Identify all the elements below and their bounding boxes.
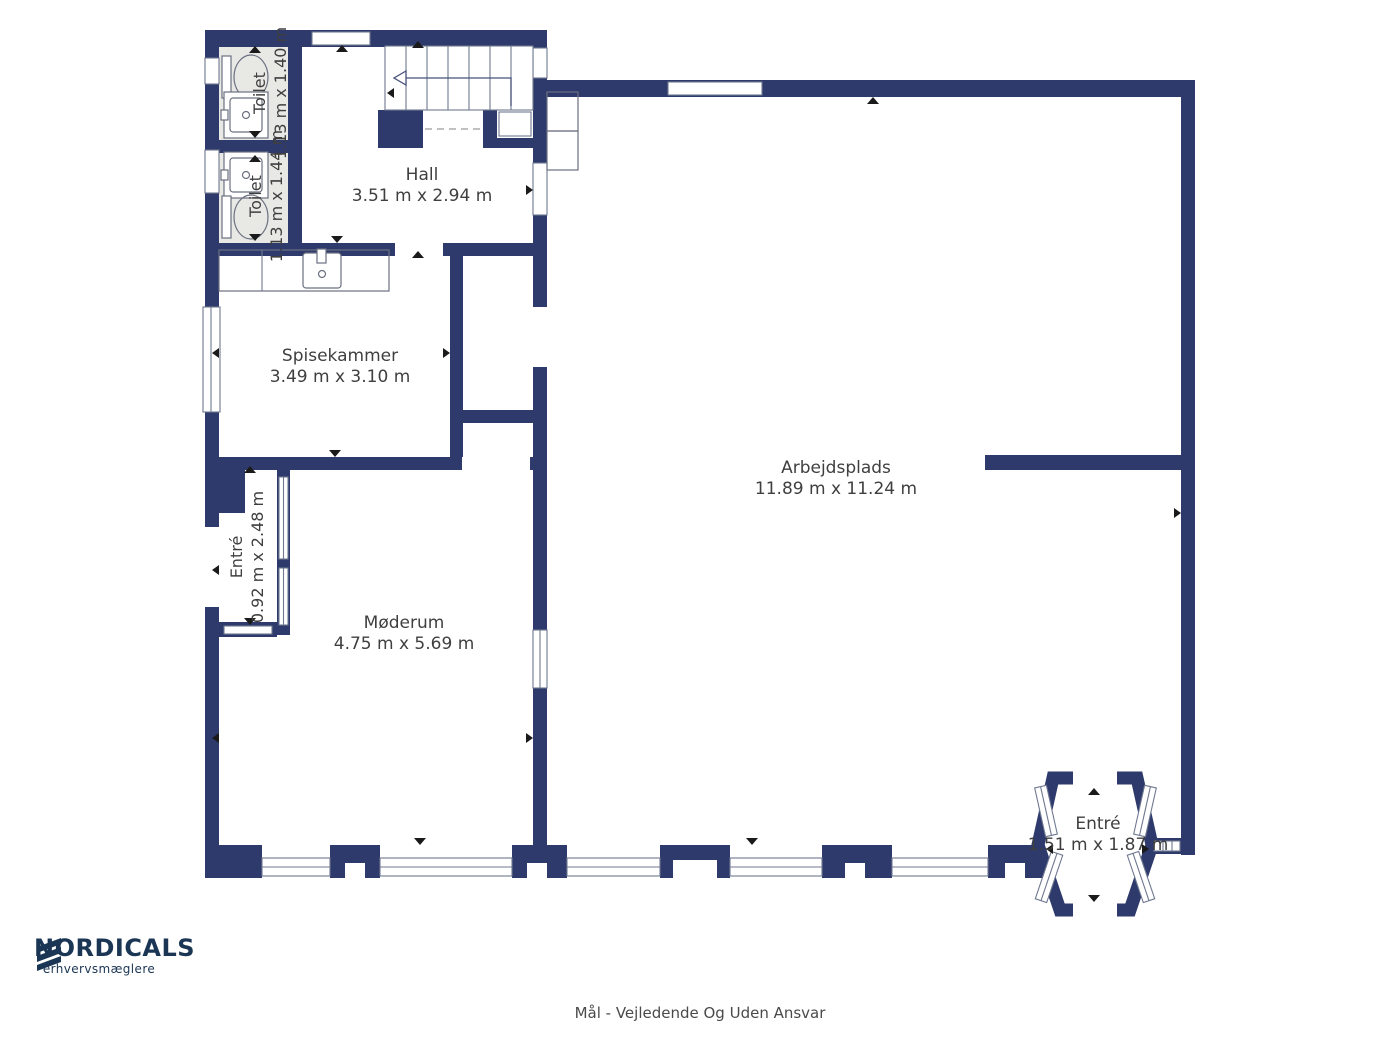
- room-label-toilet-top: Toilet: [250, 72, 269, 115]
- wall-segment: [450, 410, 547, 423]
- room-label-moederum: Møderum: [364, 613, 445, 633]
- room-label-spisekammer: Spisekammer: [282, 346, 398, 366]
- walls: [205, 30, 1195, 855]
- pier: [205, 845, 262, 878]
- window: [668, 82, 762, 95]
- pier-opening: [673, 860, 717, 878]
- room-dims-arbejdsplads: 11.89 m x 11.24 m: [755, 479, 917, 499]
- room-label-toilet-bottom: Toilet: [246, 175, 265, 218]
- measure-arrow: [867, 97, 879, 104]
- sink-tap-icon: [221, 170, 228, 180]
- room-dims-spisekammer: 3.49 m x 3.10 m: [270, 367, 411, 387]
- room-label-hall: Hall: [406, 165, 439, 185]
- room-dims-entre-left: 0.92 m x 2.48 m: [248, 491, 267, 623]
- measure-arrow: [1174, 508, 1181, 518]
- wall-stub: [985, 455, 1181, 470]
- door-opening: [462, 457, 530, 470]
- room-dims-hall: 3.51 m x 2.94 m: [352, 186, 493, 206]
- wall-segment: [547, 80, 1195, 97]
- understair-wall: [483, 110, 497, 148]
- understair-wall: [497, 138, 533, 148]
- pier-opening: [845, 863, 865, 878]
- wc-tank-icon: [222, 196, 231, 238]
- measure-arrow: [526, 185, 533, 195]
- wall-segment: [205, 30, 547, 47]
- window: [224, 626, 272, 634]
- floorplan-drawing: Hall 3.51 m x 2.94 m Spisekammer 3.49 m …: [0, 0, 1400, 1050]
- wall-segment: [219, 457, 245, 513]
- room-label-entre-left: Entré: [227, 536, 246, 579]
- measure-arrow: [526, 733, 533, 743]
- measure-arrow: [746, 838, 758, 845]
- room-dims-entre-right: 1.51 m x 1.87 m: [1028, 835, 1169, 855]
- nordicals-logo-mark: [34, 936, 64, 972]
- room-label-arbejdsplads: Arbejdsplads: [781, 458, 891, 478]
- sink-tap-icon: [221, 110, 228, 120]
- measure-arrow: [329, 450, 341, 457]
- room-dims-toilet-bottom: 1.13 m x 1.44 m: [267, 130, 286, 262]
- understair-wall: [378, 110, 423, 148]
- door-opening: [533, 307, 547, 367]
- window: [533, 48, 547, 78]
- door-opening: [1073, 770, 1117, 786]
- room-labels: Hall 3.51 m x 2.94 m Spisekammer 3.49 m …: [227, 27, 1168, 855]
- wall-segment: [1181, 80, 1195, 855]
- measure-arrow: [443, 348, 450, 358]
- measure-arrows: [212, 41, 1181, 902]
- nordicals-logo: NORDICALS erhvervsmæglere: [34, 936, 164, 976]
- cabinet-icon: [547, 92, 578, 131]
- measure-arrow: [331, 236, 343, 243]
- room-dims-moederum: 4.75 m x 5.69 m: [334, 634, 475, 654]
- measure-arrow: [414, 838, 426, 845]
- window: [312, 32, 370, 45]
- pier-opening: [1005, 863, 1025, 878]
- pier-opening: [527, 863, 547, 878]
- pier-opening: [345, 863, 365, 878]
- floorplan-page: Hall 3.51 m x 2.94 m Spisekammer 3.49 m …: [0, 0, 1400, 1050]
- tap-icon: [317, 249, 326, 263]
- wall-segment: [450, 256, 463, 470]
- disclaimer-text: Mål - Vejledende Og Uden Ansvar: [0, 1004, 1400, 1022]
- cabinet-icon: [547, 131, 578, 170]
- window: [205, 58, 219, 84]
- wall-segment: [533, 30, 547, 855]
- room-label-entre-right: Entré: [1075, 814, 1120, 834]
- door-opening: [1073, 902, 1117, 918]
- window: [533, 163, 547, 215]
- colonnade: [205, 845, 1048, 878]
- window: [205, 150, 219, 193]
- understair-door: [499, 112, 531, 136]
